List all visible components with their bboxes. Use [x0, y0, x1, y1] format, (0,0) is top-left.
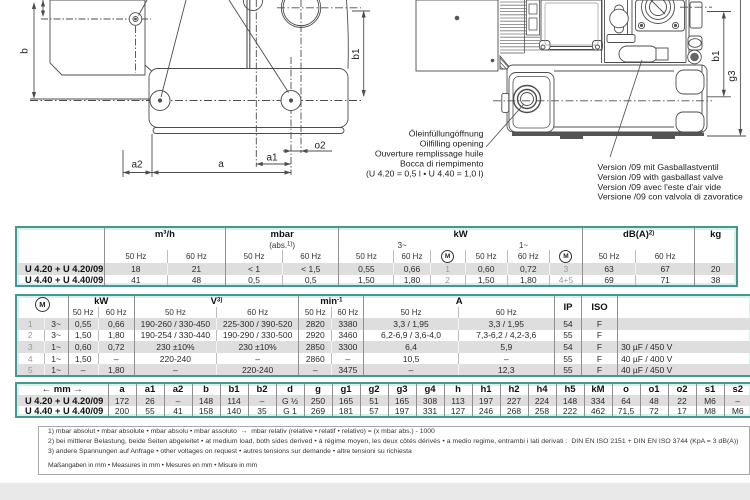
svg-text:g3: g3: [727, 70, 738, 82]
svg-text:b1: b1: [711, 50, 722, 62]
svg-text:o2: o2: [314, 141, 326, 152]
svg-text:Versione /09 con valvola di za: Versione /09 con valvola di zavoratice: [598, 191, 744, 201]
svg-text:Bocca di riempimento: Bocca di riempimento: [400, 159, 484, 169]
svg-text:a2: a2: [131, 160, 143, 171]
svg-text:a1: a1: [266, 153, 278, 164]
svg-text:Version /09 avec l'este d'air: Version /09 avec l'este d'air vide: [598, 182, 722, 192]
svg-text:(U 4.20 = 0,5 l • U 4.40 = 1,0: (U 4.20 = 0,5 l • U 4.40 = 1,0 l): [366, 169, 484, 179]
svg-text:b1: b1: [351, 48, 362, 60]
svg-text:Oilfilling opening: Oilfilling opening: [420, 139, 484, 149]
svg-text:Version /09 with gasballast va: Version /09 with gasballast valve: [598, 172, 724, 182]
svg-text:Ouverture remplissage huile: Ouverture remplissage huile: [375, 149, 484, 159]
svg-text:Version /09 mit Gasballastvent: Version /09 mit Gasballastventil: [598, 162, 719, 172]
svg-text:b: b: [20, 48, 31, 54]
svg-text:a: a: [218, 159, 224, 170]
svg-text:Öleinfüllungöffnung: Öleinfüllungöffnung: [409, 128, 484, 138]
